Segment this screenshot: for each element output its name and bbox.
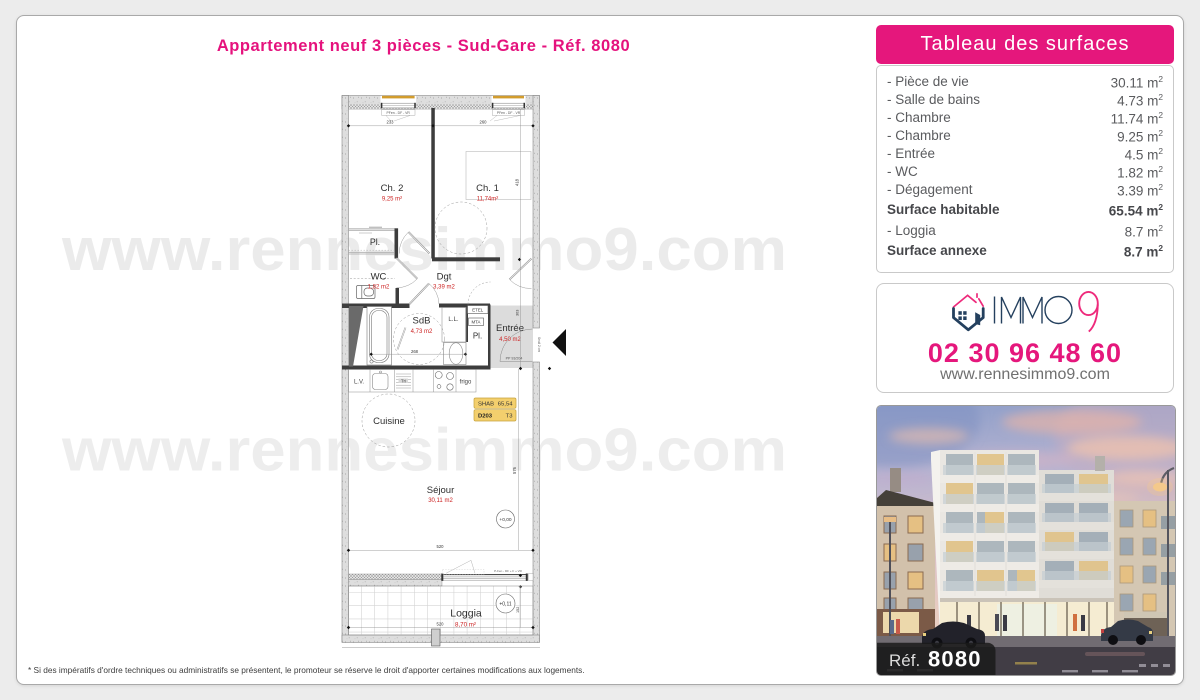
svg-text:Ch. 2: Ch. 2 bbox=[381, 183, 404, 194]
svg-text:+0,11: +0,11 bbox=[499, 602, 511, 608]
svg-text:T3: T3 bbox=[506, 414, 514, 420]
svg-text:+0,00: +0,00 bbox=[499, 517, 511, 523]
svg-text:Pl.: Pl. bbox=[473, 332, 482, 341]
svg-text:576: 576 bbox=[512, 466, 517, 474]
svg-text:Ch. 1: Ch. 1 bbox=[476, 183, 499, 194]
svg-text:PP 93/204: PP 93/204 bbox=[506, 357, 523, 361]
svg-text:3,39 m2: 3,39 m2 bbox=[433, 285, 455, 291]
svg-text:4,73 m2: 4,73 m2 bbox=[411, 329, 433, 335]
svg-text:www.rennesimmo9.com: www.rennesimmo9.com bbox=[61, 216, 787, 283]
svg-text:Pl.: Pl. bbox=[370, 237, 380, 247]
svg-text:520: 520 bbox=[437, 622, 445, 627]
svg-text:30,11 m2: 30,11 m2 bbox=[428, 498, 453, 504]
svg-text:260: 260 bbox=[480, 120, 488, 125]
svg-text:www.rennesimmo9.com: www.rennesimmo9.com bbox=[61, 417, 787, 484]
svg-text:520: 520 bbox=[437, 544, 445, 549]
svg-text:WC: WC bbox=[371, 272, 387, 283]
svg-text:Cuisine: Cuisine bbox=[373, 416, 405, 427]
svg-text:Tri: Tri bbox=[401, 379, 406, 384]
svg-text:Dgt: Dgt bbox=[437, 272, 452, 283]
svg-text:P-Fen - DF + F + VR: P-Fen - DF + F + VR bbox=[494, 569, 523, 573]
svg-text:Séjour: Séjour bbox=[427, 485, 454, 496]
svg-text:frigo: frigo bbox=[460, 380, 472, 386]
svg-text:268: 268 bbox=[411, 349, 419, 354]
svg-text:11,74m²: 11,74m² bbox=[477, 197, 499, 203]
svg-text:418: 418 bbox=[515, 178, 520, 186]
svg-text:PFen - DF - VR: PFen - DF - VR bbox=[387, 111, 411, 115]
svg-text:PFen - DF - VR: PFen - DF - VR bbox=[497, 111, 521, 115]
svg-text:Loggia: Loggia bbox=[450, 608, 482, 620]
svg-text:SdB: SdB bbox=[413, 316, 431, 327]
svg-text:8080: 8080 bbox=[928, 647, 982, 672]
svg-text:Entrée: Entrée bbox=[496, 323, 524, 334]
svg-text:Réf.: Réf. bbox=[889, 651, 920, 670]
svg-text:303: 303 bbox=[516, 310, 520, 316]
svg-text:ETEL: ETEL bbox=[472, 308, 484, 313]
svg-text:L.L.: L.L. bbox=[448, 316, 459, 323]
svg-text:SHAB: SHAB bbox=[478, 402, 494, 408]
svg-text:MTA: MTA bbox=[472, 320, 481, 325]
svg-text:1,82 m2: 1,82 m2 bbox=[368, 285, 390, 291]
svg-text:D203: D203 bbox=[478, 414, 493, 420]
svg-text:Seuil 2 cm: Seuil 2 cm bbox=[537, 337, 541, 352]
svg-text:233: 233 bbox=[387, 120, 395, 125]
svg-text:L.V.: L.V. bbox=[354, 380, 364, 386]
svg-text:152: 152 bbox=[516, 607, 520, 613]
svg-text:9,25 m²: 9,25 m² bbox=[382, 197, 402, 203]
svg-text:4,50 m2: 4,50 m2 bbox=[499, 337, 521, 343]
svg-text:65,54: 65,54 bbox=[498, 402, 513, 408]
